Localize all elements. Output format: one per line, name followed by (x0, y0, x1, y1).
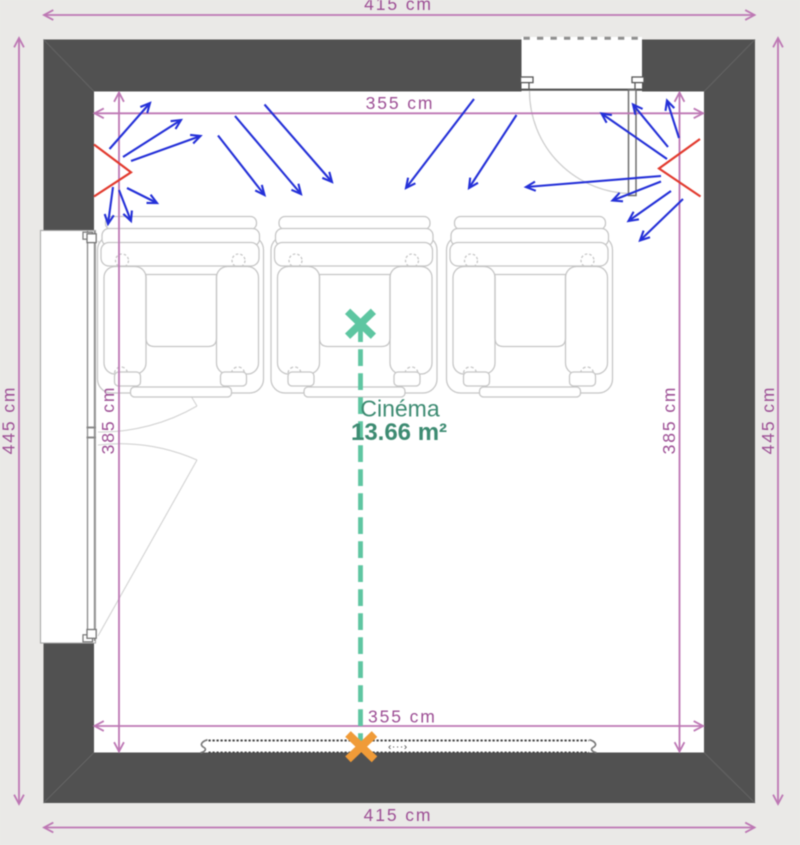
svg-text:13.66 m²: 13.66 m² (351, 419, 447, 446)
svg-text:445 cm: 445 cm (0, 386, 19, 455)
svg-text:‹···›: ‹···› (388, 742, 408, 753)
svg-text:355 cm: 355 cm (366, 93, 435, 113)
svg-text:Cinéma: Cinéma (360, 396, 439, 422)
svg-text:415 cm: 415 cm (364, 805, 433, 825)
svg-text:355 cm: 355 cm (368, 707, 437, 727)
svg-text:415 cm: 415 cm (364, 0, 433, 14)
svg-text:385 cm: 385 cm (659, 386, 679, 455)
svg-text:445 cm: 445 cm (758, 386, 778, 455)
svg-text:385 cm: 385 cm (98, 386, 118, 455)
